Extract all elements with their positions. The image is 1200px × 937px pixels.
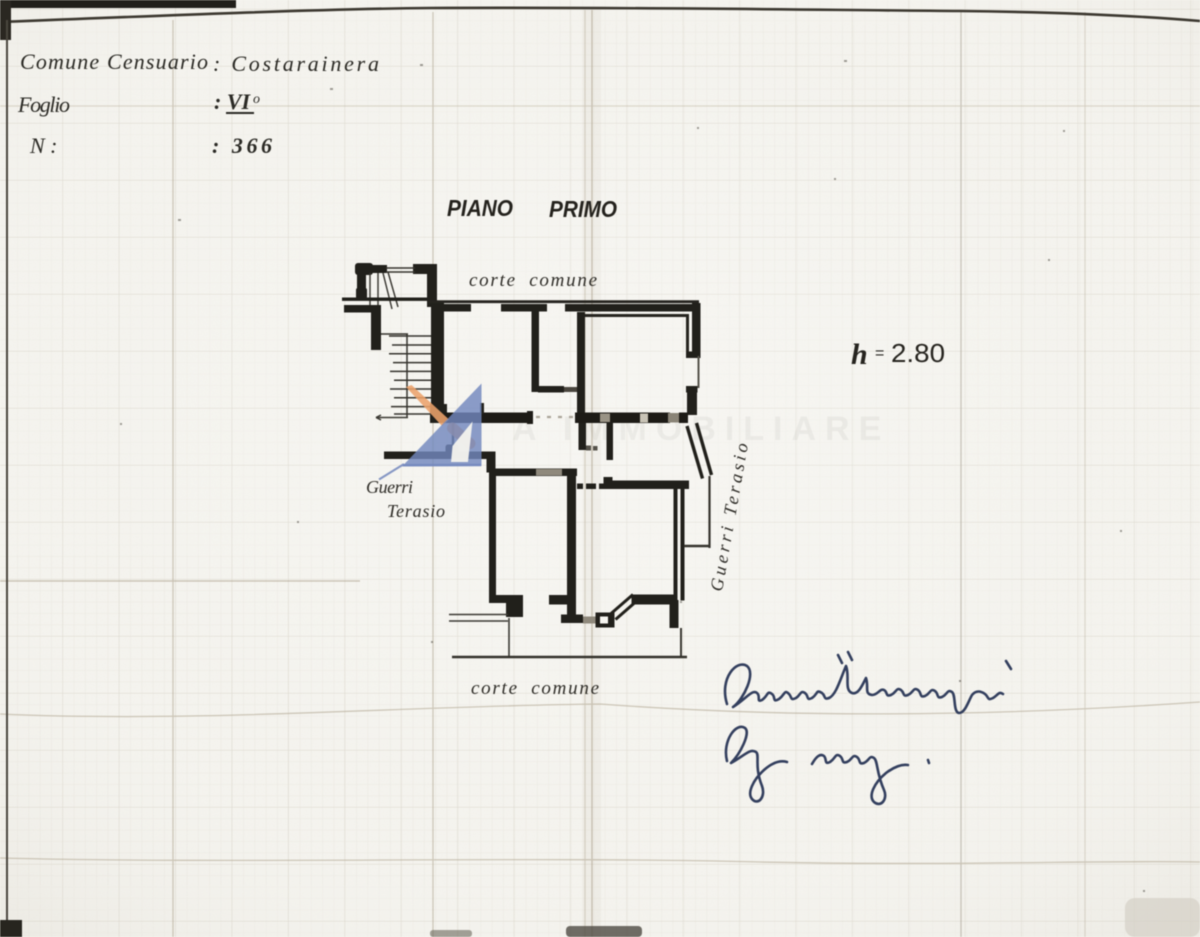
svg-text:Comune Censuario: Comune Censuario	[20, 49, 208, 74]
svg-text:2.80: 2.80	[891, 338, 945, 368]
svg-text:N :: N :	[29, 133, 58, 158]
svg-text:: VI: : VI	[214, 89, 252, 114]
svg-text:corte comune: corte comune	[471, 678, 599, 699]
svg-text:Foglio: Foglio	[17, 92, 70, 117]
svg-text:PRIMO: PRIMO	[549, 196, 617, 222]
svg-text:=: =	[875, 345, 884, 362]
svg-text:Terasio: Terasio	[387, 501, 445, 521]
svg-text:h: h	[851, 338, 868, 371]
svg-text:corte comune: corte comune	[469, 270, 597, 291]
svg-text:o: o	[253, 92, 260, 107]
svg-text:Guerri: Guerri	[366, 477, 413, 497]
svg-text:PIANO: PIANO	[447, 195, 513, 221]
